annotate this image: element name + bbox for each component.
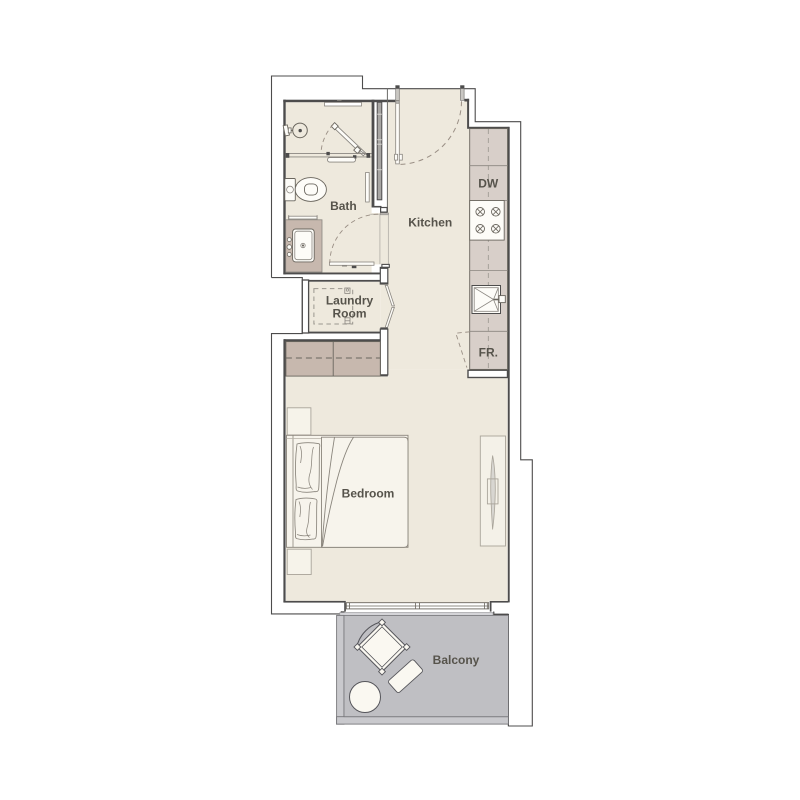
- svg-text:Room: Room: [333, 307, 367, 321]
- svg-text:Laundry: Laundry: [326, 294, 374, 308]
- svg-text:Bedroom: Bedroom: [342, 486, 395, 500]
- svg-text:FR.: FR.: [479, 345, 498, 359]
- svg-text:DW: DW: [478, 177, 499, 191]
- svg-text:Bath: Bath: [330, 199, 357, 213]
- svg-text:Kitchen: Kitchen: [408, 216, 452, 230]
- svg-text:Balcony: Balcony: [433, 653, 480, 667]
